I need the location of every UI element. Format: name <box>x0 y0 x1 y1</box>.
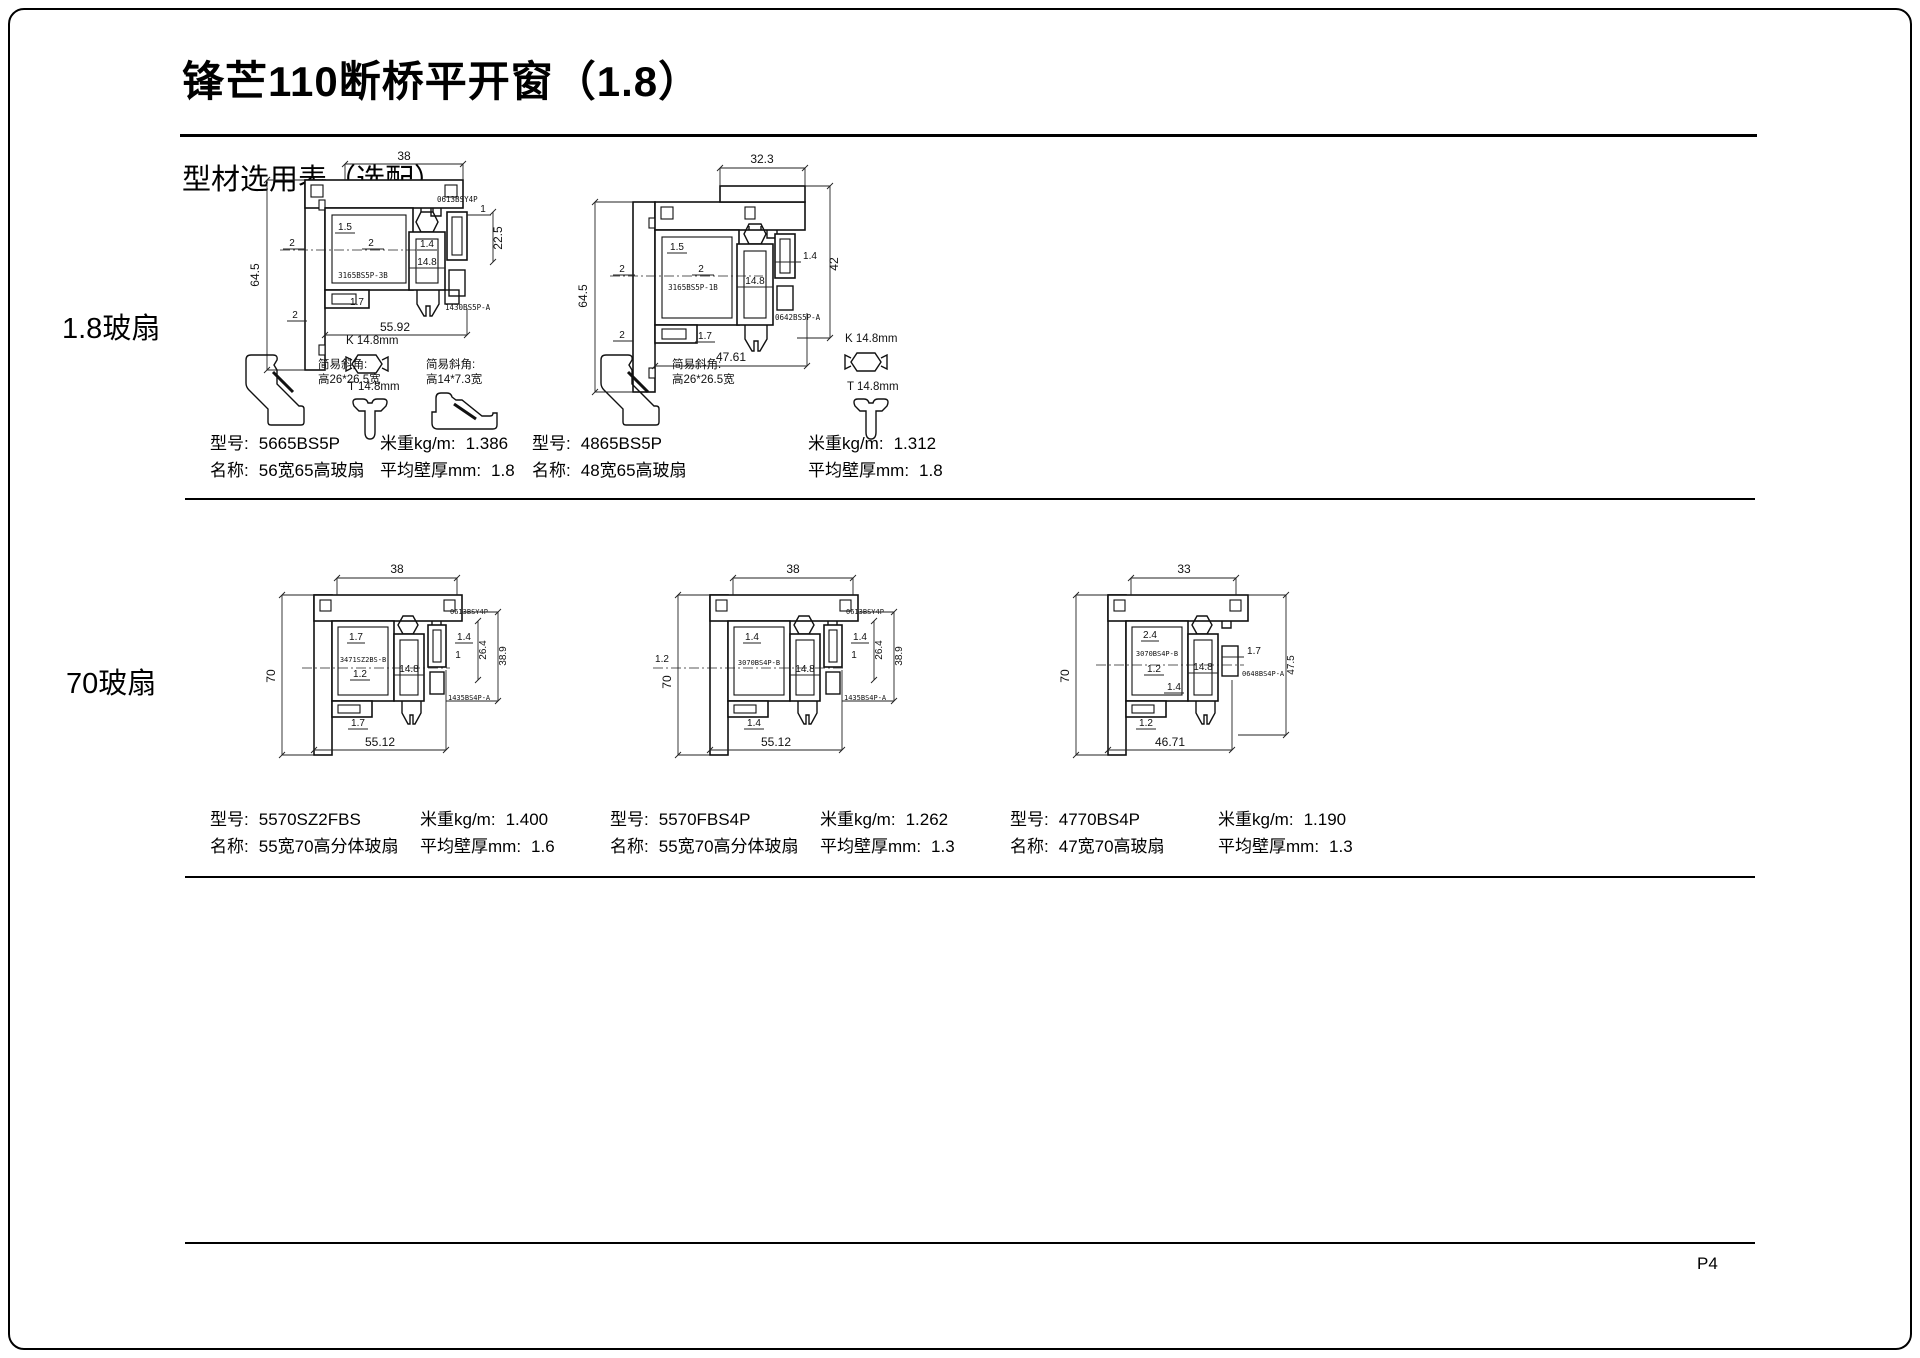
spec-4-id: 型号:5570FBS4P 名称:55宽70高分体玻扇 <box>610 806 799 860</box>
bottom-rule <box>185 1242 1755 1244</box>
name-value: 55宽70高分体玻扇 <box>259 837 399 856</box>
w-1-7: 1.7 <box>1247 646 1261 657</box>
dim-32-3: 32.3 <box>750 152 774 166</box>
diagram-4770BS4P: 33 70 2.4 3070BS4P-B 1.2 14.8 1.4 1.7 06… <box>1046 550 1326 780</box>
model-value: 5665BS5P <box>259 434 340 453</box>
dim-64-5: 64.5 <box>248 263 262 287</box>
model-label: 型号: <box>610 810 649 829</box>
weight-label: 米重kg/m: <box>808 434 884 453</box>
w-1: 1 <box>455 650 461 661</box>
w-1-2b: 1.2 <box>1139 718 1153 729</box>
diagram-4865BS5P: 32.3 64.5 42 1.5 2 2 3165BS5P-1B 14.8 1.… <box>505 138 855 448</box>
w-1-4: 1.4 <box>1167 682 1181 693</box>
weight-label: 米重kg/m: <box>380 434 456 453</box>
part-main: 3070BS4P-B <box>1136 650 1178 658</box>
model-label: 型号: <box>210 434 249 453</box>
row2-rule <box>185 876 1755 878</box>
name-label: 名称: <box>1010 837 1049 856</box>
thickness-label: 平均壁厚mm: <box>380 461 481 480</box>
k-strip-label: K 14.8mm <box>346 334 398 349</box>
model-label: 型号: <box>1010 810 1049 829</box>
model-value: 4865BS5P <box>581 434 662 453</box>
dim-70: 70 <box>264 669 278 683</box>
diagram-5570FBS4P: 38 1.2 70 1.4 3070BS4P-B 14.8 0613BSY4P … <box>648 550 928 780</box>
corner-cleat-icon <box>598 352 660 428</box>
dim-26-4: 26.4 <box>478 640 489 660</box>
w-2c: 2 <box>292 310 298 321</box>
part-bead: 0613BSY4P <box>437 195 478 204</box>
spec-1-id: 型号:5665BS5P 名称:56宽65高玻扇 <box>210 430 365 484</box>
spec-5-id: 型号:4770BS4P 名称:47宽70高玻扇 <box>1010 806 1165 860</box>
row-label-70: 70玻扇 <box>66 660 156 702</box>
w-1-7t: 1.7 <box>349 632 363 643</box>
w-1-2: 1.2 <box>1147 664 1161 675</box>
name-label: 名称: <box>610 837 649 856</box>
w-1-4: 1.4 <box>803 251 817 262</box>
dim-70: 70 <box>660 675 674 689</box>
dim-55-12: 55.12 <box>365 735 395 749</box>
weight-value: 1.400 <box>506 810 549 829</box>
w-1-7: 1.7 <box>698 331 712 342</box>
w-14-8: 14.8 <box>1193 662 1213 673</box>
thickness-label: 平均壁厚mm: <box>808 461 909 480</box>
w-1-2: 1.2 <box>353 669 367 680</box>
part-main: 3165BS5P-1B <box>668 283 718 292</box>
thickness-label: 平均壁厚mm: <box>820 837 921 856</box>
dim-33: 33 <box>1177 562 1191 576</box>
page-title: 锋芒110断桥平开窗（1.8） <box>182 48 701 109</box>
weight-value: 1.312 <box>894 434 937 453</box>
t-strip-label: T 14.8mm <box>348 380 400 395</box>
dim-47-5: 47.5 <box>1286 655 1297 675</box>
w-1-7: 1.7 <box>350 297 364 308</box>
thickness-value: 1.8 <box>491 461 515 480</box>
profile-outline <box>314 595 462 755</box>
model-label: 型号: <box>532 434 571 453</box>
part-main: 3070BS4P-B <box>738 659 780 667</box>
w-1-7b: 1.7 <box>351 718 365 729</box>
weight-value: 1.262 <box>906 810 949 829</box>
dim-46-71: 46.71 <box>1155 735 1185 749</box>
diagram-5570SZ2FBS: 38 70 1.7 3471SZ2BS-B 1.2 14.8 0613BSY4P… <box>252 550 532 780</box>
dim-38: 38 <box>390 562 404 576</box>
spec-3-weight: 米重kg/m:1.400 平均壁厚mm:1.6 <box>420 806 555 860</box>
spec-3-id: 型号:5570SZ2FBS 名称:55宽70高分体玻扇 <box>210 806 399 860</box>
dimensions: 38 1.2 70 1.4 3070BS4P-B 14.8 0613BSY4P … <box>653 562 905 758</box>
row-label-1-8: 1.8玻扇 <box>62 305 160 347</box>
spec-2-id: 型号:4865BS5P 名称:48宽65高玻扇 <box>532 430 687 484</box>
w-1-4b: 1.4 <box>747 718 761 729</box>
corner-cleat2-label: 简易斜角: 高14*7.3宽 <box>426 358 482 388</box>
spec-1-weight: 米重kg/m:1.386 平均壁厚mm:1.8 <box>380 430 515 484</box>
title-rule <box>180 134 1757 137</box>
w-1-5: 1.5 <box>670 242 684 253</box>
weight-label: 米重kg/m: <box>420 810 496 829</box>
part-corner: 1435BS4P-A <box>448 694 491 702</box>
dim-1-2-left: 1.2 <box>655 654 669 665</box>
spec-5-weight: 米重kg/m:1.190 平均壁厚mm:1.3 <box>1218 806 1353 860</box>
catalog-page: 锋芒110断桥平开窗（1.8） 型材选用表（选配） 1.8玻扇 70玻扇 <box>0 0 1920 1358</box>
thickness-value: 1.8 <box>919 461 943 480</box>
model-value: 4770BS4P <box>1059 810 1140 829</box>
name-value: 48宽65高玻扇 <box>581 461 687 480</box>
part-corner: 0648BS4P-A <box>1242 670 1285 678</box>
weight-label: 米重kg/m: <box>1218 810 1294 829</box>
profile-outline <box>1108 595 1248 755</box>
corner-cleat2-icon <box>428 386 500 434</box>
part-corner: 1435BS4P-A <box>844 694 887 702</box>
w-14-8: 14.8 <box>417 257 437 268</box>
dim-70: 70 <box>1058 669 1072 683</box>
model-value: 5570SZ2FBS <box>259 810 361 829</box>
w-14-8: 14.8 <box>745 276 765 287</box>
w-2b: 2 <box>698 264 704 275</box>
w-1-5: 1.5 <box>338 222 352 233</box>
profile-outline <box>710 595 858 755</box>
dim-38-9: 38.9 <box>894 646 905 666</box>
part-corner: 1430BS5P-A <box>445 303 491 312</box>
w-2a: 2 <box>619 264 625 275</box>
w-1-4r: 1.4 <box>853 632 867 643</box>
w-2c: 2 <box>619 330 625 341</box>
k-strip-icon <box>344 350 390 378</box>
w-2-4: 2.4 <box>1143 630 1157 641</box>
name-label: 名称: <box>210 837 249 856</box>
w-2a: 2 <box>289 238 295 249</box>
weight-value: 1.190 <box>1304 810 1347 829</box>
w-1-4: 1.4 <box>420 239 434 250</box>
dim-38: 38 <box>786 562 800 576</box>
part-main: 3471SZ2BS-B <box>340 656 386 664</box>
k-strip-icon <box>843 348 889 376</box>
part-main: 3165BS5P-3B <box>338 271 388 280</box>
thickness-label: 平均壁厚mm: <box>1218 837 1319 856</box>
weight-label: 米重kg/m: <box>820 810 896 829</box>
w-14-8: 14.8 <box>399 664 419 675</box>
k-strip-label: K 14.8mm <box>845 332 897 347</box>
part-corner: 0642BS5P-A <box>775 313 821 322</box>
name-label: 名称: <box>532 461 571 480</box>
w-2b: 2 <box>368 238 374 249</box>
thickness-label: 平均壁厚mm: <box>420 837 521 856</box>
name-value: 56宽65高玻扇 <box>259 461 365 480</box>
spec-4-weight: 米重kg/m:1.262 平均壁厚mm:1.3 <box>820 806 955 860</box>
dim-38: 38 <box>397 149 411 163</box>
dim-42: 42 <box>827 257 841 271</box>
thickness-value: 1.6 <box>531 837 555 856</box>
dim-38-9: 38.9 <box>498 646 509 666</box>
row1-rule <box>185 498 1755 500</box>
name-label: 名称: <box>210 461 249 480</box>
spec-2-weight: 米重kg/m:1.312 平均壁厚mm:1.8 <box>808 430 943 484</box>
dim-55-12: 55.12 <box>761 735 791 749</box>
dim-26-4: 26.4 <box>874 640 885 660</box>
thickness-value: 1.3 <box>1329 837 1353 856</box>
name-value: 55宽70高分体玻扇 <box>659 837 799 856</box>
w-1: 1 <box>851 650 857 661</box>
w-1: 1 <box>480 204 486 215</box>
thickness-value: 1.3 <box>931 837 955 856</box>
dim-22-5: 22.5 <box>491 226 505 250</box>
t-strip-label: T 14.8mm <box>847 380 899 395</box>
name-value: 47宽70高玻扇 <box>1059 837 1165 856</box>
model-value: 5570FBS4P <box>659 810 751 829</box>
dim-55-92: 55.92 <box>380 320 410 334</box>
weight-value: 1.386 <box>466 434 509 453</box>
page-number: P4 <box>1697 1254 1718 1274</box>
model-label: 型号: <box>210 810 249 829</box>
dim-64-5: 64.5 <box>576 284 590 308</box>
corner-cleat-icon <box>243 352 305 428</box>
w-14-8: 14.8 <box>795 664 815 675</box>
w-1-4: 1.4 <box>457 632 471 643</box>
corner-cleat-label: 简易斜角: 高26*26.5宽 <box>672 358 735 388</box>
w-1-4t: 1.4 <box>745 632 759 643</box>
